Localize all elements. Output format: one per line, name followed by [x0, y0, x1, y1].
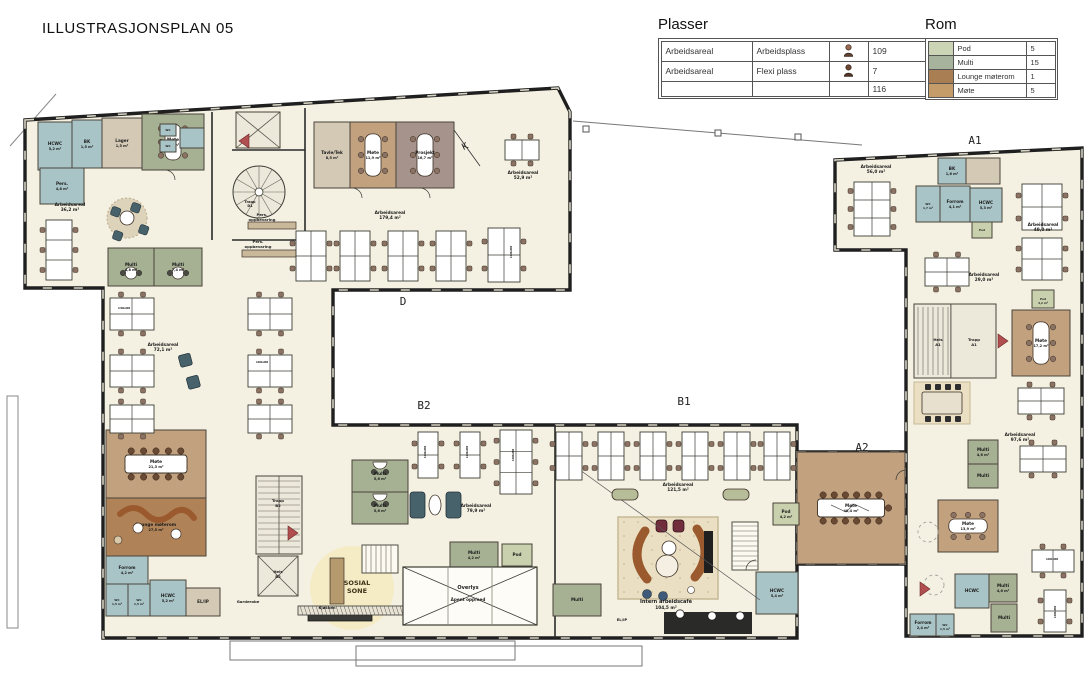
plan-label: D1 — [247, 204, 253, 208]
plan-label: 160x80 — [465, 446, 469, 458]
plan-label: oppbevaring — [249, 217, 276, 222]
overlys-skylight — [403, 567, 537, 625]
plan-label: oppbevaring — [245, 244, 272, 249]
spiral-stair — [233, 166, 285, 218]
plan-label: 160x80 — [1046, 557, 1058, 561]
room-multi — [352, 460, 408, 492]
room-multi — [450, 542, 498, 568]
section-label-a2: A2 — [855, 441, 868, 454]
plan-label: Forrom — [915, 620, 933, 625]
desk-cluster — [460, 432, 480, 478]
desk-cluster — [500, 430, 532, 494]
plan-label: Multi — [571, 597, 584, 602]
plan-label: Møte — [1035, 338, 1047, 343]
plan-label: Tavle/Tek — [321, 150, 343, 155]
site-marker — [583, 126, 589, 132]
desk-cluster — [340, 231, 370, 281]
plan-label: 97,6 m² — [1011, 437, 1030, 443]
lounge-chair — [178, 353, 193, 368]
stair — [732, 522, 758, 570]
room-hcwc — [756, 572, 798, 614]
room-forrom — [910, 614, 936, 636]
desk-cluster — [1020, 446, 1066, 472]
plan-label: 104,5 m² — [655, 605, 677, 611]
desk-cluster — [640, 432, 666, 480]
plan-label: B2 — [275, 574, 281, 579]
plan-label: 4,6 m² — [977, 453, 990, 457]
plan-label: 5,6 m² — [374, 509, 387, 513]
desk-cluster — [110, 298, 154, 330]
plan-label: 1,5 m² — [116, 144, 129, 148]
desk-cluster — [388, 231, 418, 281]
desk-cluster — [925, 258, 969, 286]
desk-cluster — [248, 298, 292, 330]
desk-cluster — [296, 231, 326, 281]
plan-label: 160x80 — [423, 446, 427, 458]
section-label-b1: B1 — [677, 395, 690, 408]
plan-label: A1 — [935, 342, 941, 347]
section-label-d: D — [400, 295, 407, 308]
plan-label: Multi — [125, 262, 138, 267]
room-hcwc — [970, 188, 1002, 222]
plan-label: 79,9 m² — [467, 508, 486, 514]
plan-label: Møte — [150, 459, 162, 464]
plan-label: Pod — [979, 228, 985, 232]
plan-label: 11,9 m² — [365, 156, 381, 160]
flexi-table — [612, 489, 638, 500]
terrace-outline — [230, 641, 515, 660]
room-multi — [968, 440, 998, 464]
desk-cluster — [1018, 388, 1064, 414]
desk-cluster — [436, 231, 466, 281]
desk-cluster — [248, 405, 292, 433]
plan-label: Multi — [172, 262, 185, 267]
plan-label: Multi — [468, 550, 481, 555]
desk-cluster — [1022, 238, 1062, 280]
plan-label: Multi — [998, 615, 1011, 620]
plan-label: Multi — [977, 473, 990, 478]
plan-label: 5,3 m² — [980, 206, 993, 210]
plan-label: Møte — [845, 503, 857, 508]
plan-label: WC — [165, 128, 170, 132]
plan-label: 4,2 m² — [121, 571, 134, 575]
plan-label: 179,4 m² — [379, 215, 401, 221]
room-m-te — [797, 452, 905, 564]
plan-label: Møte — [367, 150, 379, 155]
plan-label: 160x80 — [509, 246, 513, 258]
plan-label: Prosjekt — [415, 150, 435, 155]
plan-label: 5,2 m² — [49, 147, 62, 151]
desk-cluster — [488, 228, 520, 282]
plan-label: 1,5 m² — [81, 145, 94, 149]
room-prosjekt — [396, 122, 454, 188]
section-label-b2: B2 — [417, 399, 430, 412]
plan-label: Pod — [782, 509, 791, 514]
room-forrom — [940, 186, 970, 222]
plan-label: 4,2 m² — [468, 556, 481, 560]
lounge-chair — [186, 375, 201, 390]
plan-label: 8,5 m² — [326, 156, 339, 160]
plan-label: 160x80 — [511, 449, 515, 461]
desk-cluster — [1032, 550, 1074, 572]
plan-label: 1,5 m² — [134, 602, 145, 606]
desk-cluster — [110, 405, 154, 433]
plan-label: HCWC — [161, 593, 175, 598]
storage-shelf — [248, 222, 296, 229]
floorplan-page: { "title": "ILLUSTRASJONSPLAN 05", "lege… — [0, 0, 1087, 673]
plan-label: SOSIAL — [344, 579, 370, 587]
desk-cluster — [418, 432, 438, 478]
room-bk — [72, 120, 102, 168]
desk-cluster — [682, 432, 708, 480]
room-m-te — [350, 122, 396, 188]
room — [256, 476, 302, 554]
plan-label: 49,0 m² — [1034, 227, 1053, 233]
plan-label: 1,7 m² — [923, 206, 934, 210]
site-line — [7, 396, 18, 628]
room — [180, 128, 204, 148]
room-lager — [102, 118, 142, 168]
plan-label: Overlys — [457, 585, 478, 591]
section-label-a1: A1 — [968, 134, 981, 147]
plan-label: HCWC — [965, 588, 979, 593]
plan-label: 1,6 m² — [946, 172, 959, 176]
plan-label: 4,2 m² — [1038, 301, 1049, 305]
desk-cluster — [110, 355, 154, 387]
kitchen-island — [330, 558, 344, 604]
room-m-te — [938, 500, 998, 552]
desk-cluster — [46, 220, 72, 280]
room-multi — [352, 492, 408, 524]
plan-label: 5,2 m² — [162, 599, 175, 603]
plan-label: 7,4 m² — [172, 268, 185, 272]
multi-table — [914, 382, 970, 424]
room-m-te — [1012, 310, 1070, 376]
plan-label: Multi — [977, 447, 990, 452]
room-hcwc — [150, 580, 186, 616]
room-tavle-tek — [314, 122, 350, 188]
plan-label: Pod — [513, 552, 522, 557]
desk-cluster — [764, 432, 790, 480]
room-pod — [773, 503, 799, 525]
plan-label: 36,2 m² — [61, 207, 80, 213]
desk-cluster — [724, 432, 750, 480]
desk-cluster — [598, 432, 624, 480]
plan-label: Pers. — [56, 181, 68, 186]
plan-label: Kjøkken — [318, 605, 335, 610]
plan-label: Multi — [374, 503, 387, 508]
plan-label: 121,5 m² — [667, 487, 689, 493]
plan-label: 4,6 m² — [997, 589, 1010, 593]
terrace-outline — [356, 646, 642, 666]
site-marker — [715, 130, 721, 136]
plan-label: 13,9 m² — [960, 527, 976, 531]
room-pers- — [40, 168, 84, 204]
plan-label: 72,1 m² — [154, 347, 173, 353]
plan-label: 4,1 m² — [949, 205, 962, 209]
room-multi — [154, 248, 202, 286]
plan-label: Lager — [115, 138, 129, 143]
booth-sofa — [446, 492, 461, 518]
plan-label: B2 — [275, 503, 281, 508]
plan-label: 1,5 m² — [112, 602, 123, 606]
plan-label: 16,7 m² — [417, 156, 433, 160]
plan-label: 4,8 m² — [56, 187, 69, 191]
room-m-te — [106, 430, 206, 498]
plan-label: 4,2 m² — [780, 515, 793, 519]
plan-label: HCWC — [48, 141, 62, 146]
room-bk — [938, 158, 966, 184]
desk-cluster — [505, 140, 539, 160]
plan-label: 5,6 m² — [374, 477, 387, 481]
plan-label: BK — [84, 139, 91, 144]
plan-label: 4,8 m² — [125, 268, 138, 272]
plan-label: EL/IP — [617, 617, 628, 622]
plan-label: 17,2 m² — [1033, 344, 1049, 348]
stair — [362, 545, 398, 573]
storage-shelf — [242, 250, 297, 257]
plan-label: SONE — [347, 587, 367, 595]
plan-label: Forrom — [947, 199, 965, 204]
plan-label: Multi — [374, 471, 387, 476]
plan-label: Forrom — [119, 565, 137, 570]
desk-cluster — [854, 182, 890, 236]
column — [736, 612, 744, 620]
plan-label: Garderobe — [237, 599, 260, 604]
column — [676, 610, 684, 618]
plan-label: 52,9 m² — [514, 175, 533, 181]
room-multi — [989, 574, 1017, 602]
desk-cluster — [248, 355, 292, 387]
plan-label: Intern arbeidscafé — [640, 598, 693, 605]
plan-label: 2,4 m² — [917, 626, 930, 630]
plan-label: BK — [949, 166, 956, 171]
room-forrom — [106, 556, 148, 584]
plan-label: HCWC — [979, 200, 993, 205]
plan-label: 160x80 — [256, 360, 268, 364]
room-hcwc — [38, 122, 72, 170]
plan-label: Multi — [997, 583, 1010, 588]
plan-label: EL/IP — [197, 599, 209, 604]
room — [966, 158, 1000, 184]
plan-label: HCWC — [770, 588, 784, 593]
plan-label: 160x80 — [1053, 606, 1057, 618]
plan-label: 56,0 m² — [867, 169, 886, 175]
site-marker — [795, 134, 801, 140]
room — [914, 304, 996, 378]
plan-label: 27,5 m² — [148, 528, 164, 532]
plan-label: Åpent opp/ned — [451, 597, 486, 602]
plan-label: Møte — [962, 521, 974, 526]
plan-label: 40,4 m² — [843, 509, 859, 513]
column — [708, 612, 716, 620]
floorplan-svg: HCWC5,2 m²BK1,5 m²Lager1,5 m²Møte6,8 m²P… — [0, 0, 1087, 673]
flexi-table — [723, 489, 749, 500]
plan-label: 29,0 m² — [975, 277, 994, 283]
plan-label: 5,4 m² — [771, 594, 784, 598]
plan-label: 1,5 m² — [940, 627, 951, 631]
room-lounge-m-terom — [106, 498, 206, 556]
desk-cluster — [556, 432, 582, 480]
plan-label: A1 — [971, 342, 977, 347]
plan-label: WC — [165, 144, 170, 148]
room-multi — [108, 248, 154, 286]
booth-sofa — [410, 492, 425, 518]
plan-label: 21,3 m² — [148, 465, 164, 469]
plan-label: 140x80 — [118, 306, 130, 310]
